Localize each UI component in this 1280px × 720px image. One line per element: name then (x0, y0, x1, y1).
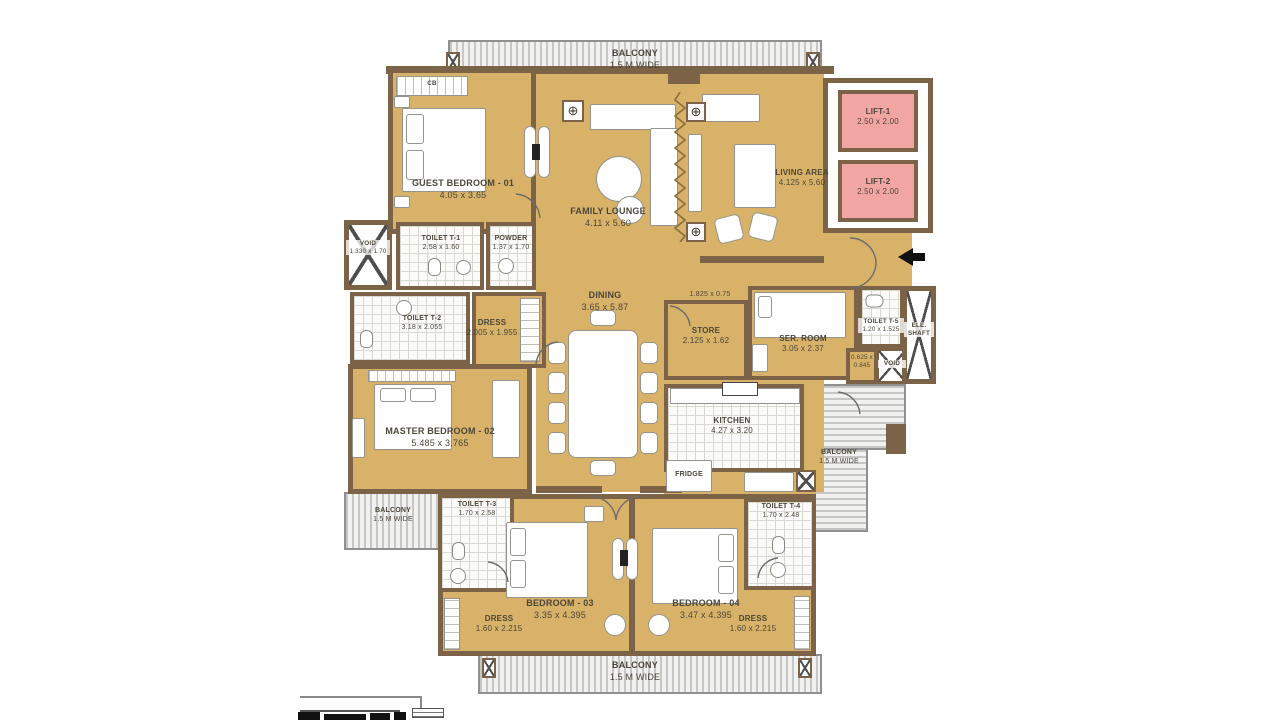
dining-chair (548, 372, 566, 394)
bedside-table (394, 96, 410, 108)
room-powder (486, 222, 536, 290)
pillow (410, 388, 436, 402)
key-plan-line (300, 696, 422, 698)
key-plan-detail (412, 708, 444, 718)
wc-icon (428, 258, 441, 276)
sink-icon (456, 260, 471, 275)
wall (700, 256, 824, 263)
pillow (758, 296, 772, 318)
wc-icon (866, 295, 884, 308)
wardrobe (368, 370, 456, 382)
toilet-t3-label: TOILET T-31.70 x 2.58 (442, 500, 512, 518)
entrance-arrow-icon (913, 253, 925, 261)
dress-master-label: DRESS2.005 x 1.955 (462, 318, 522, 339)
wall-block (886, 424, 906, 454)
dining-chair (548, 432, 566, 454)
ser-room-label: SER. ROOM3.05 x 2.37 (758, 334, 848, 355)
tv-icon (532, 144, 540, 160)
ele-shaft-label: ELE. SHAFT (904, 322, 934, 337)
wc-icon (360, 330, 373, 348)
dining-chair (640, 342, 658, 364)
void-left-label: VOID1.330 x 1.70 (346, 240, 390, 255)
powder-label: POWDER1.37 x 1.70 (486, 234, 536, 252)
living-side-seat (688, 134, 702, 212)
dining-chair (640, 372, 658, 394)
balcony-top-label: BALCONY1.5 M WIDE (560, 48, 710, 71)
lift-1-label: LIFT-12.50 x 2.00 (843, 107, 913, 128)
round-table (596, 156, 642, 202)
wc-icon (452, 542, 465, 560)
door-arc (588, 494, 644, 522)
shaft-icon (796, 470, 816, 492)
lounge-sofa (590, 104, 676, 130)
toilet-t4-label: TOILET T-41.70 x 2.48 (748, 502, 814, 520)
lift-2-label: LIFT-22.50 x 2.00 (843, 177, 913, 198)
void-right-label: VOID (878, 360, 906, 368)
living-sofa (702, 94, 760, 122)
door-arc (486, 560, 510, 584)
dining-label: DINING3.65 x 5.87 (555, 290, 655, 313)
column-symbol-icon: ⊕ (686, 102, 706, 122)
fridge-label: FRIDGE (666, 470, 712, 479)
floor-plan-page: { "palette":{"floor_tan":"#d8b268","wall… (0, 0, 1280, 720)
dining-chair (590, 460, 616, 476)
pillow (718, 534, 734, 562)
pillow (510, 560, 526, 588)
door-arc (534, 340, 560, 366)
balcony-left-label: BALCONY1.5 M WIDE (350, 506, 436, 524)
entrance-arrow-icon (898, 248, 913, 266)
key-plan-block (324, 714, 366, 720)
pillow (406, 114, 424, 144)
guest-bedroom-label: GUEST BEDROOM - 014.05 x 3.65 (398, 178, 528, 201)
balcony-post-icon (482, 658, 496, 678)
dining-chair (640, 432, 658, 454)
zigzag-divider (674, 92, 686, 242)
store-label: STORE2.125 x 1.62 (670, 326, 742, 347)
pillow (718, 566, 734, 594)
pillow (510, 528, 526, 556)
sink-icon (498, 258, 514, 274)
toilet-t5-label: TOILET T-51.20 x 1.525 (858, 318, 904, 333)
sink-icon (450, 568, 466, 584)
room-toilet-t1 (396, 222, 484, 290)
balcony-bottom-label: BALCONY1.5 M WIDE (560, 660, 710, 683)
balcony-post-icon (798, 658, 812, 678)
closet-cb-label: CB (420, 80, 444, 88)
pillow (406, 150, 424, 180)
dining-chair (640, 402, 658, 424)
dress-closet (794, 596, 810, 650)
dining-table (568, 330, 638, 458)
kitchen-label: KITCHEN4.27 x 3.20 (682, 416, 782, 437)
dress-03-label: DRESS1.60 x 2.215 (456, 614, 542, 635)
key-plan-line (300, 710, 400, 712)
wc-icon (772, 536, 785, 554)
key-plan-block (298, 712, 320, 720)
toilet-t1-label: TOILET T-12.58 x 1.60 (400, 234, 482, 252)
door-arc (756, 556, 780, 580)
toilet-t2-label: TOILET T-23.18 x 2.055 (380, 314, 464, 332)
column-symbol-icon: ⊕ (562, 100, 584, 122)
family-lounge-label: FAMILY LOUNGE4.11 x 5.60 (548, 206, 668, 229)
passage-label: 1.825 x 0.75 (678, 290, 742, 299)
balcony-right-label: BALCONY1.5 M WIDE (812, 448, 866, 466)
dress-04-label: DRESS1.60 x 2.215 (710, 614, 796, 635)
door-arc (668, 304, 692, 328)
master-bedroom-label: MASTER BEDROOM - 025.485 x 3.765 (360, 426, 520, 449)
entrance-door-arc (848, 236, 878, 290)
sink-counter (744, 472, 794, 492)
key-plan-block (370, 713, 390, 720)
living-area-label: LIVING AREA4.125 x 5.60 (752, 168, 852, 189)
dining-chair (548, 402, 566, 424)
tv-icon (620, 550, 628, 566)
column-symbol-icon: ⊕ (686, 222, 706, 242)
wall (536, 486, 602, 493)
shaft-small-label: 0.625 x 0.845 (848, 354, 876, 369)
stove-icon (722, 382, 758, 396)
door-arc (836, 390, 862, 416)
pillow (380, 388, 406, 402)
key-plan-block (394, 712, 406, 720)
